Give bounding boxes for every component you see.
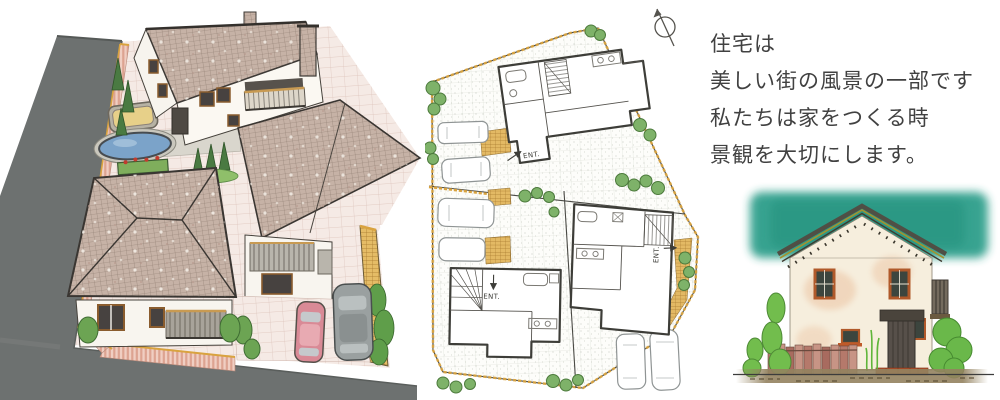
balcony — [244, 78, 306, 110]
bush — [220, 314, 240, 342]
side-balcony — [930, 280, 950, 319]
ground-wash — [736, 369, 988, 383]
window — [262, 274, 292, 294]
front-house — [68, 168, 240, 347]
left-bushes — [743, 293, 791, 377]
house-elevation-illustration — [710, 180, 1000, 400]
entrance-label: ENT. — [483, 293, 500, 301]
entrance-label: ENT. — [652, 246, 661, 263]
streetscape-illustration — [0, 0, 430, 400]
site-plan-drawing: ENT. ENT. ENT. — [425, 0, 710, 400]
caption-line: 美しい街の風景の一部です — [710, 63, 1000, 100]
bush — [244, 339, 260, 359]
pink-car — [294, 301, 325, 362]
doorway — [172, 108, 188, 134]
balcony — [166, 311, 226, 338]
tall-chimney — [300, 26, 316, 76]
gray-car — [333, 283, 374, 360]
caption-line: 住宅は — [710, 26, 1000, 63]
north-arrow-icon — [654, 9, 676, 46]
caption-panel: 住宅は 美しい街の風景の一部です 私たちは家をつくる時 景観を大切にします。 — [710, 0, 1000, 400]
bush — [78, 317, 98, 343]
caption-line: 景観を大切にします。 — [710, 137, 1000, 174]
site-plan: ENT. ENT. ENT. — [425, 0, 710, 400]
caption: 住宅は 美しい街の風景の一部です 私たちは家をつくる時 景観を大切にします。 — [710, 26, 1000, 174]
small-window — [838, 330, 862, 347]
caption-line: 私たちは家をつくる時 — [710, 100, 1000, 137]
streetscape-drawing — [0, 0, 430, 400]
